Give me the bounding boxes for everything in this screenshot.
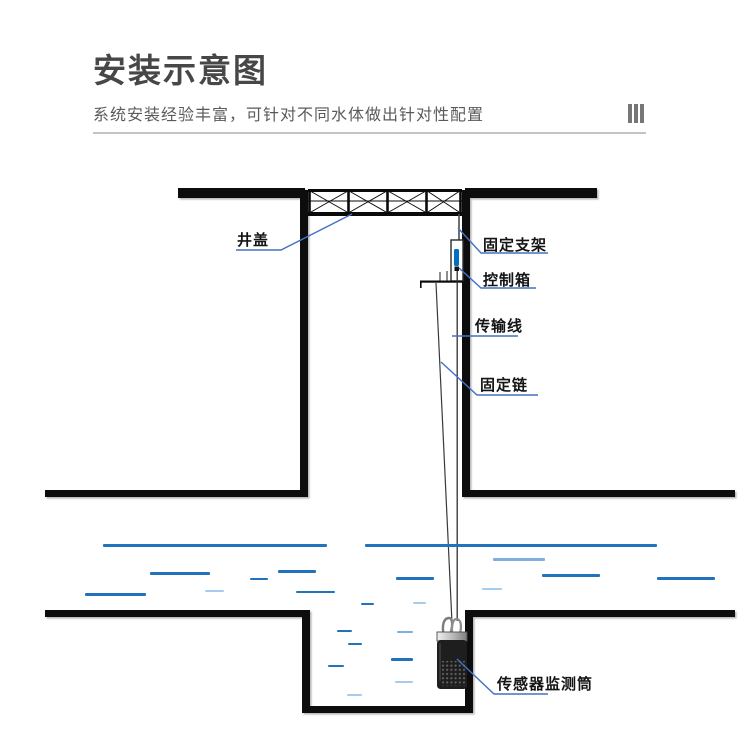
fixing-chain	[436, 283, 452, 623]
pit-wall-left	[302, 610, 310, 713]
lower-ledge-left	[45, 610, 310, 617]
label-fixed-chain: 固定链	[480, 374, 528, 395]
manhole-cover-truss	[308, 189, 462, 216]
ground-bar-left	[178, 188, 305, 198]
label-transmission-line: 传输线	[475, 315, 523, 336]
upper-ledge-left	[45, 490, 308, 497]
lower-ledge-right	[465, 610, 735, 617]
label-control-box: 控制箱	[483, 269, 531, 290]
label-fixed-bracket: 固定支架	[483, 234, 547, 255]
label-sensor-cylinder: 传感器监测筒	[497, 673, 593, 694]
installation-diagram	[0, 0, 750, 750]
support-shelf	[420, 281, 463, 283]
sensor-cap	[437, 632, 467, 641]
support-shelf-lip	[420, 281, 422, 289]
sensor-cylinder-graphic	[437, 618, 467, 689]
well-structure	[45, 188, 735, 713]
sensor-perforations	[440, 661, 465, 686]
label-manhole-cover: 井盖	[237, 229, 269, 250]
pit-bottom	[302, 706, 473, 713]
control-box-indicator	[454, 249, 459, 266]
upper-ledge-right	[462, 490, 735, 497]
ground-bar-right	[465, 188, 597, 198]
installation-diagram-page: 安装示意图 系统安装经验丰富，可针对不同水体做出针对性配置	[0, 0, 750, 750]
control-box-port	[455, 267, 460, 272]
shaft-wall-left	[300, 190, 308, 497]
